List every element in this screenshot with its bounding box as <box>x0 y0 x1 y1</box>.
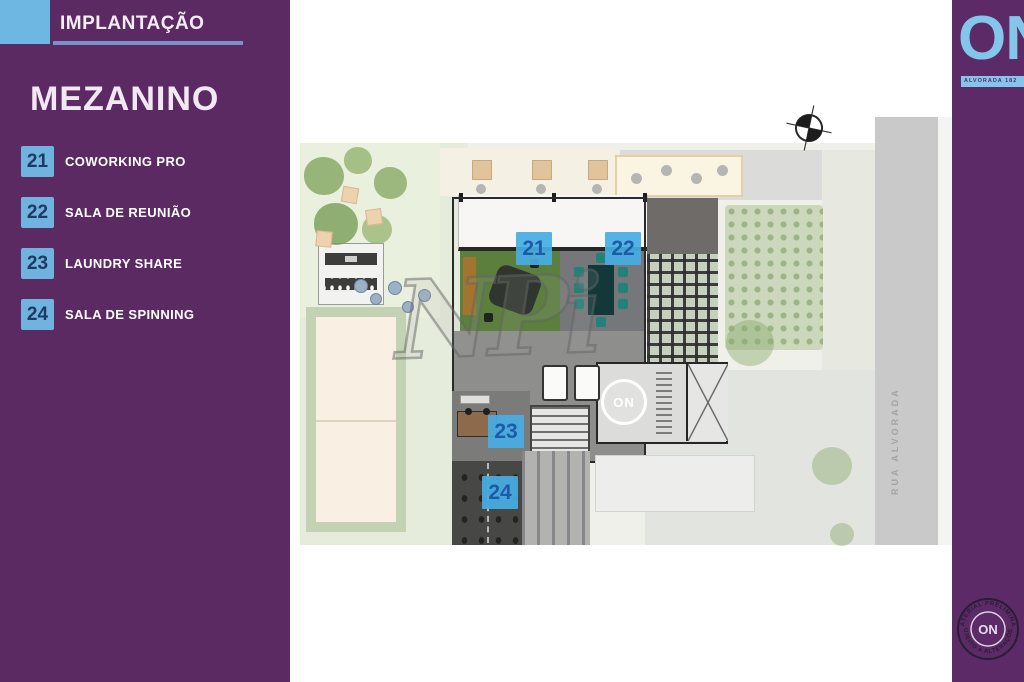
garden-lounger <box>365 208 383 226</box>
lounge-seat <box>472 160 492 180</box>
tree <box>344 147 372 174</box>
sidewalk <box>938 117 952 545</box>
laundry-shelf <box>460 395 490 404</box>
lounge-seat <box>588 160 608 180</box>
plan-marker-23: 23 <box>488 415 524 448</box>
court-midline <box>316 420 396 422</box>
terrace-framed <box>615 155 743 197</box>
bush <box>370 293 382 305</box>
plan-marker-24: 24 <box>482 476 518 509</box>
stamp-seal: MATERIAL PRELIMINAR SUJEITO A ALTERAÇÕES… <box>955 596 1021 662</box>
stool <box>717 165 728 176</box>
legend: 21 COWORKING PRO 22 SALA DE REUNIÃO 23 L… <box>21 146 194 350</box>
washer-knob <box>483 408 490 415</box>
garden-lounger <box>341 186 360 205</box>
legend-number-badge: 21 <box>21 146 54 177</box>
stool <box>661 165 672 176</box>
brand-logo: ON <box>958 8 1024 70</box>
header-tag: IMPLANTAÇÃO <box>60 13 204 35</box>
legend-label: SALA DE REUNIÃO <box>65 205 191 220</box>
legend-item: 22 SALA DE REUNIÃO <box>21 197 194 228</box>
garden-lounger <box>315 230 333 248</box>
site-plan: ON <box>300 115 952 545</box>
tree <box>830 523 854 546</box>
street-label: RUA ALVORADA <box>890 315 900 495</box>
paved-patio <box>595 455 755 512</box>
bush <box>354 279 368 293</box>
counter-top <box>345 256 357 262</box>
legend-item: 23 LAUNDRY SHARE <box>21 248 194 279</box>
plan-marker-22: 22 <box>605 232 641 265</box>
brand-tagline-bar: ALVORADA 182 <box>961 76 1024 87</box>
stool <box>536 184 546 194</box>
pergola-grid <box>647 254 718 370</box>
legend-label: SALA DE SPINNING <box>65 307 194 322</box>
accent-square <box>0 0 50 44</box>
stamp-center-text: ON <box>978 622 998 637</box>
wood-deck <box>522 451 590 545</box>
legend-item: 24 SALA DE SPINNING <box>21 299 194 330</box>
legend-label: COWORKING PRO <box>65 154 186 169</box>
page-title: MEZANINO <box>30 80 219 119</box>
bar-stools-row <box>325 278 377 290</box>
legend-number-badge: 22 <box>21 197 54 228</box>
washer-knob <box>465 408 472 415</box>
lounge-seat <box>532 160 552 180</box>
bike-rack <box>656 372 672 434</box>
tree <box>812 447 852 485</box>
tree <box>726 320 774 366</box>
street-road <box>875 117 938 545</box>
north-compass-icon <box>786 105 832 151</box>
floor-logo: ON <box>601 379 647 425</box>
slide-page: IMPLANTAÇÃO MEZANINO 21 COWORKING PRO 22… <box>0 0 1024 682</box>
legend-label: LAUNDRY SHARE <box>65 256 182 271</box>
legend-item: 21 COWORKING PRO <box>21 146 194 177</box>
sports-court <box>306 307 406 532</box>
dark-roof-block <box>647 198 718 254</box>
brand-sidebar: ON ALVORADA 182 MATERIAL PRELIMINAR SUJE… <box>952 0 1024 682</box>
elevator-shaft <box>686 364 728 441</box>
tree <box>374 167 407 199</box>
terrace <box>440 148 615 196</box>
stool <box>476 184 486 194</box>
legend-number-badge: 23 <box>21 248 54 279</box>
sidebar: IMPLANTAÇÃO MEZANINO 21 COWORKING PRO 22… <box>0 0 290 682</box>
legend-number-badge: 24 <box>21 299 54 330</box>
stool <box>592 184 602 194</box>
stool <box>631 173 642 184</box>
bar-counter <box>325 253 377 265</box>
lobby-room: ON <box>596 362 728 444</box>
header-underline <box>53 41 243 45</box>
tree <box>304 157 344 195</box>
stool <box>691 173 702 184</box>
watermark: NPi <box>393 251 600 384</box>
